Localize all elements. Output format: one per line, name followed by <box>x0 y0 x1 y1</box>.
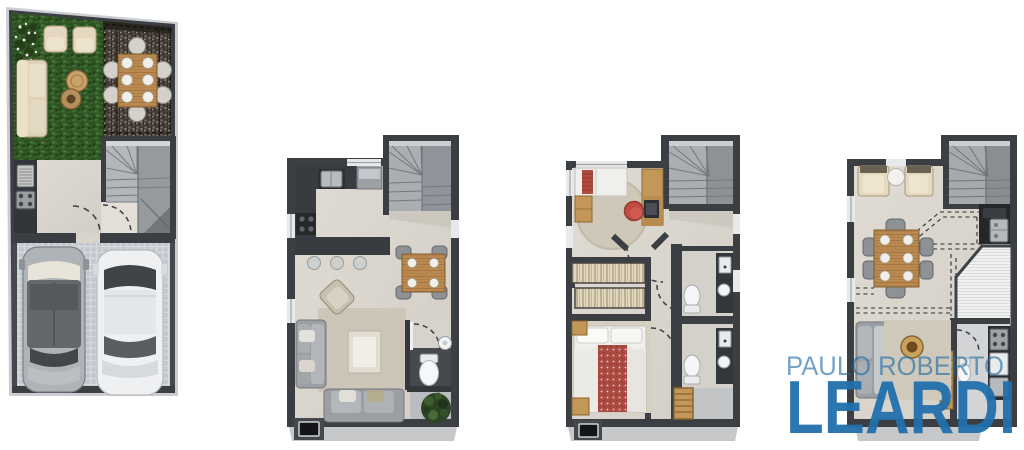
svg-text:LEARDI: LEARDI <box>786 365 1016 449</box>
